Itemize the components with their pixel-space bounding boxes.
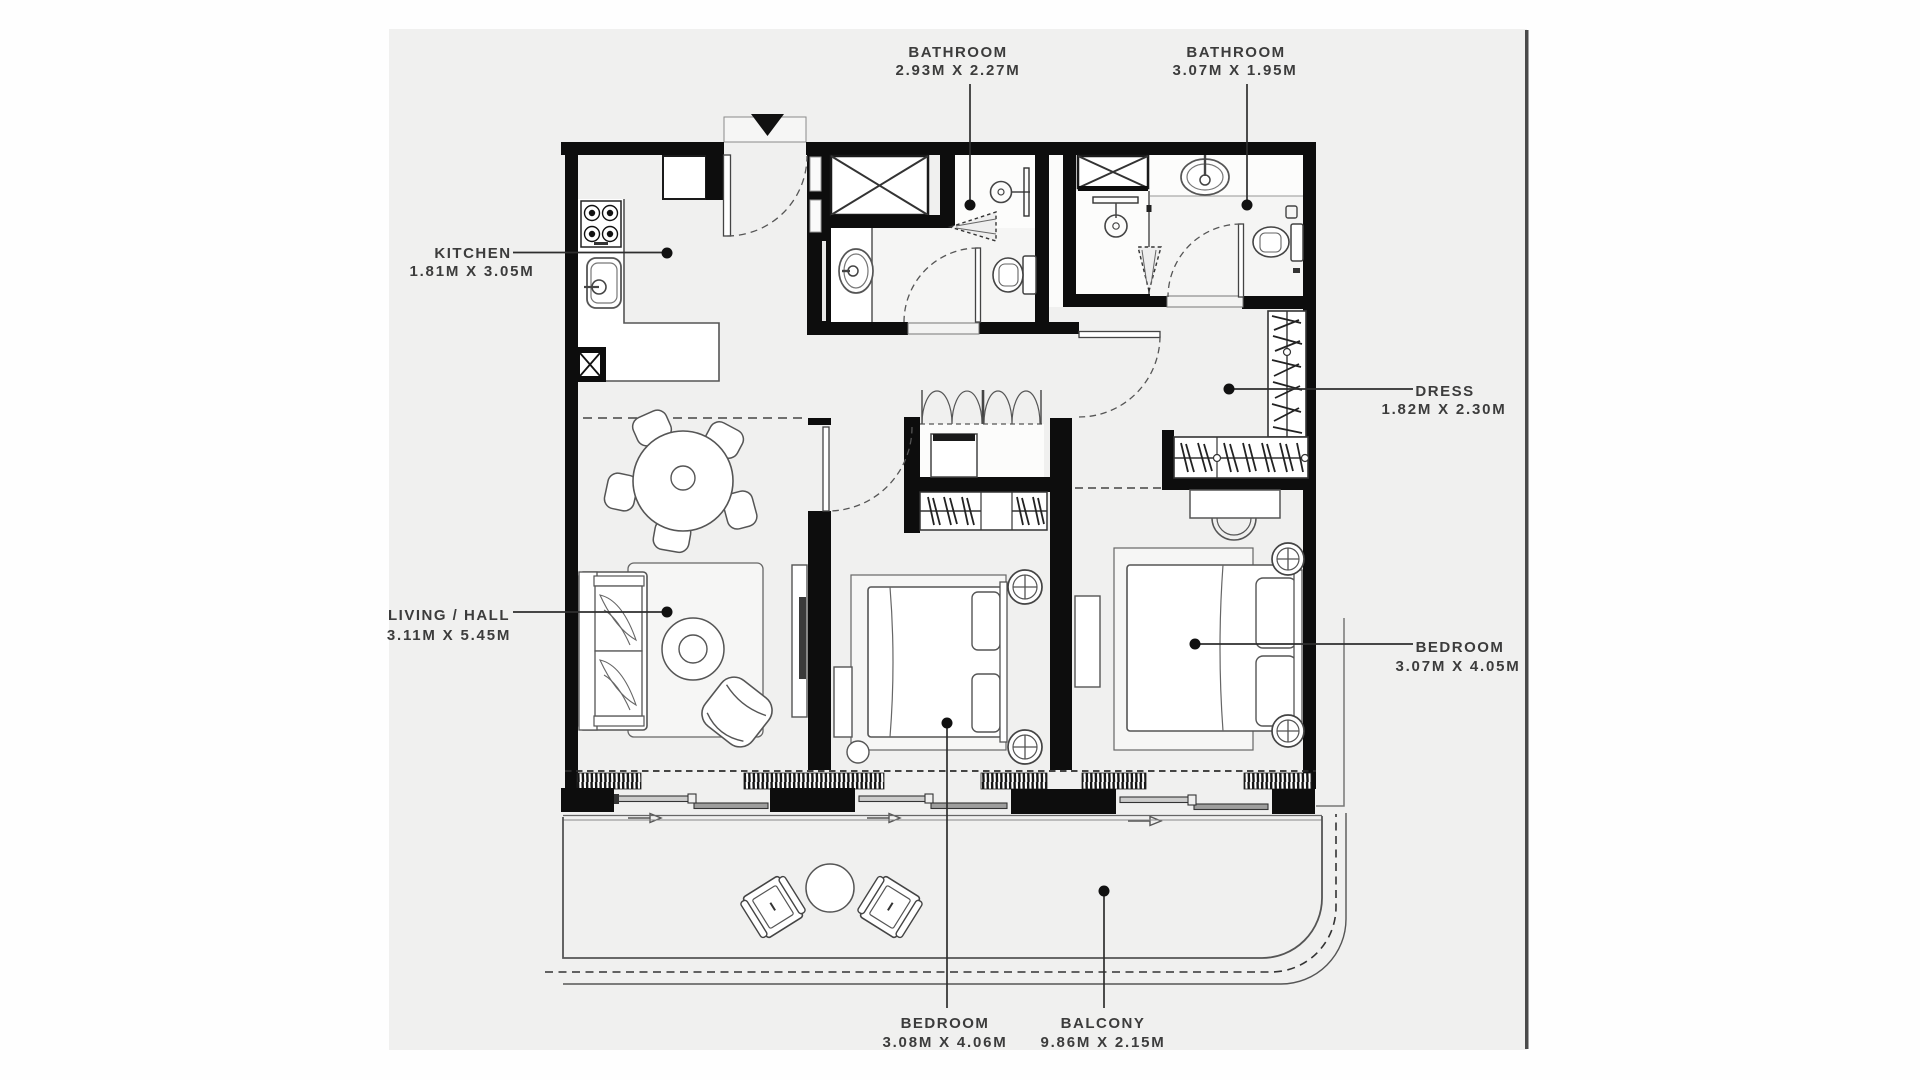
svg-text:BATHROOM: BATHROOM [1186,44,1285,61]
svg-text:3.07M X 4.05M: 3.07M X 4.05M [1395,658,1520,675]
svg-text:LIVING / HALL: LIVING / HALL [388,607,510,624]
svg-text:3.11M X 5.45M: 3.11M X 5.45M [387,627,511,644]
svg-text:BALCONY: BALCONY [1061,1015,1146,1032]
svg-text:9.86M X 2.15M: 9.86M X 2.15M [1040,1034,1165,1051]
svg-text:1.82M X 2.30M: 1.82M X 2.30M [1381,401,1506,418]
svg-text:3.08M X 4.06M: 3.08M X 4.06M [882,1034,1007,1051]
svg-text:BEDROOM: BEDROOM [901,1015,990,1032]
svg-text:BATHROOM: BATHROOM [908,44,1007,61]
svg-text:BEDROOM: BEDROOM [1416,639,1505,656]
svg-text:KITCHEN: KITCHEN [434,245,511,262]
svg-text:DRESS: DRESS [1415,383,1474,400]
svg-text:1.81M X 3.05M: 1.81M X 3.05M [409,263,534,280]
svg-text:3.07M X 1.95M: 3.07M X 1.95M [1172,62,1297,79]
svg-text:2.93M X 2.27M: 2.93M X 2.27M [895,62,1020,79]
